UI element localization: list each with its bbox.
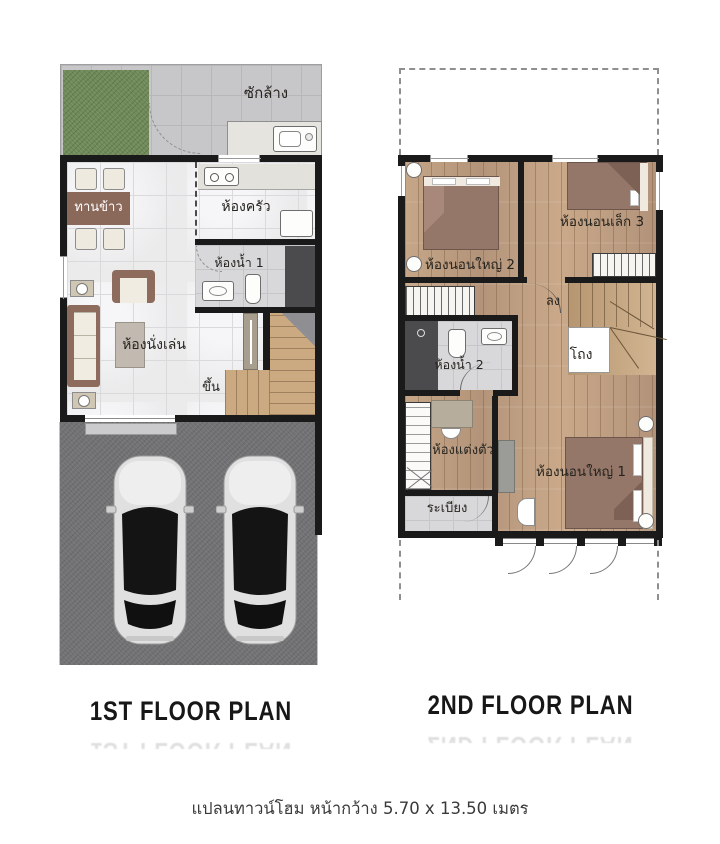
window-line (219, 158, 261, 159)
window-marker (430, 155, 468, 162)
bedroom3-label: ห้องนอนเล็ก 3 (548, 215, 656, 230)
dimension-text: แปลนทาวน์โฮม หน้ากว้าง 5.70 x 13.50 เมตร (0, 796, 720, 822)
outdoor-laundry-area: ซักล้าง (60, 64, 322, 156)
stairs-up-label: ขึ้น (186, 381, 236, 395)
boundary-line (317, 535, 318, 665)
nightstand (638, 416, 654, 432)
bathroom2-wall-top (405, 315, 518, 321)
plan1-caption: 1ST FLOOR PLAN (84, 696, 299, 727)
sofa (67, 305, 100, 387)
nightstand (406, 162, 422, 178)
window-line (431, 158, 469, 159)
plan1-caption-reflection: 1ST FLOOR PLAN (60, 736, 322, 749)
blanket-fold (424, 186, 444, 251)
roof-overhang-outline (399, 68, 659, 155)
armchair-cushion (120, 278, 147, 303)
window-line (63, 257, 64, 299)
garden-patch (63, 70, 149, 155)
fan-symbol (76, 283, 88, 295)
pillow (466, 178, 490, 185)
bathroom2-wall-bottom (405, 390, 460, 396)
car-top-view-1 (106, 450, 194, 650)
bathroom2-toilet (448, 329, 466, 358)
bathroom1-shower (285, 246, 315, 307)
plan1-caption-reflection-text: 1ST FLOOR PLAN (84, 736, 299, 749)
bed-bedroom3 (567, 162, 647, 210)
stairs-down-label: ลง (535, 295, 571, 309)
burner (210, 173, 219, 182)
plan2-caption: 2ND FLOOR PLAN (422, 690, 639, 721)
pillow (432, 178, 456, 185)
refrigerator (280, 210, 313, 237)
bedroom2-label: ห้องนอนใหญ่ 2 (410, 258, 530, 273)
bed-bedroom1 (565, 437, 643, 529)
window-line (553, 158, 599, 159)
bedroom-divider-wall (518, 162, 524, 277)
vanity-stool (441, 428, 461, 439)
gate-bar (85, 423, 177, 435)
kitchen-dashed-partition (195, 162, 197, 245)
console-line (250, 320, 252, 364)
sofa-cushions (74, 312, 96, 380)
dining-table: ทานข้าว (67, 192, 130, 225)
shower-head (417, 329, 425, 337)
bathroom1-sink (202, 281, 234, 301)
second-floor-interior: ห้องนอนใหญ่ 2 ห้องนอนเล็ก 3 ลง โถง (398, 155, 663, 538)
closet-x (407, 469, 433, 489)
side-table (72, 392, 96, 409)
desk (498, 440, 515, 493)
stair-console (243, 313, 258, 370)
nightstand (638, 513, 654, 529)
window-marker (398, 166, 405, 196)
bed-headboard (640, 163, 648, 211)
dining-chair (75, 228, 97, 250)
stair-wall (263, 313, 270, 370)
stair-treads (568, 283, 656, 327)
sliding-door-opening (85, 415, 175, 422)
stair-landing (270, 313, 315, 355)
door-line (85, 418, 175, 419)
window-marker (552, 155, 598, 162)
sink-faucet (305, 133, 313, 141)
dining-chair (103, 228, 125, 250)
sink-basin (487, 332, 502, 341)
first-floor-interior: ทานข้าว ห้องครัว ห้องน้ำ 1 (60, 155, 322, 422)
side-table (70, 280, 94, 297)
vanity-counter (431, 400, 473, 428)
desk-chair (517, 498, 535, 526)
door-opening (218, 155, 260, 162)
window-marker (656, 172, 663, 210)
burner (225, 173, 234, 182)
blanket-fold (608, 163, 640, 211)
dining-chair (103, 168, 125, 190)
stove (204, 167, 239, 186)
window-line (401, 166, 402, 196)
fan-symbol (78, 395, 90, 407)
wardrobe-bedroom2 (405, 286, 475, 318)
living-label: ห้องนั่งเล่น (104, 338, 204, 353)
wardrobe-bedroom3 (592, 253, 656, 277)
garage-side-wall (315, 422, 322, 535)
hall-label: โถง (553, 348, 609, 363)
hall-wall-left (405, 277, 527, 283)
armchair (112, 270, 155, 303)
sink-basin (209, 286, 227, 296)
boundary-line (59, 422, 60, 665)
roof-outline-below (399, 540, 659, 600)
bedroom1-label: ห้องนอนใหญ่ 1 (518, 465, 644, 480)
floor-plan-image: ซักล้าง ทานข้าว ห้องครัว ห้องน้ำ 1 (0, 0, 720, 844)
laundry-label: ซักล้าง (211, 85, 321, 102)
dining-label: ทานข้าว (74, 201, 122, 215)
window-marker (60, 256, 67, 298)
plan2-caption-reflection: 2ND FLOOR PLAN (398, 730, 663, 743)
plan2-caption-reflection-text: 2ND FLOOR PLAN (422, 730, 639, 743)
sink-basin (279, 131, 301, 147)
laundry-sink (273, 126, 317, 152)
door-swing-arc (149, 103, 201, 154)
bathroom2-sink (481, 328, 507, 345)
dining-chair (75, 168, 97, 190)
kitchen-label: ห้องครัว (201, 200, 291, 215)
stairs-upper-flight (270, 313, 315, 415)
bathroom2-wall-right (512, 315, 518, 396)
bathroom2-shower (405, 321, 438, 390)
car-top-view-2 (216, 450, 304, 650)
bathroom1-toilet (245, 274, 261, 304)
window-line (659, 172, 660, 210)
bed-bedroom2 (423, 176, 499, 250)
